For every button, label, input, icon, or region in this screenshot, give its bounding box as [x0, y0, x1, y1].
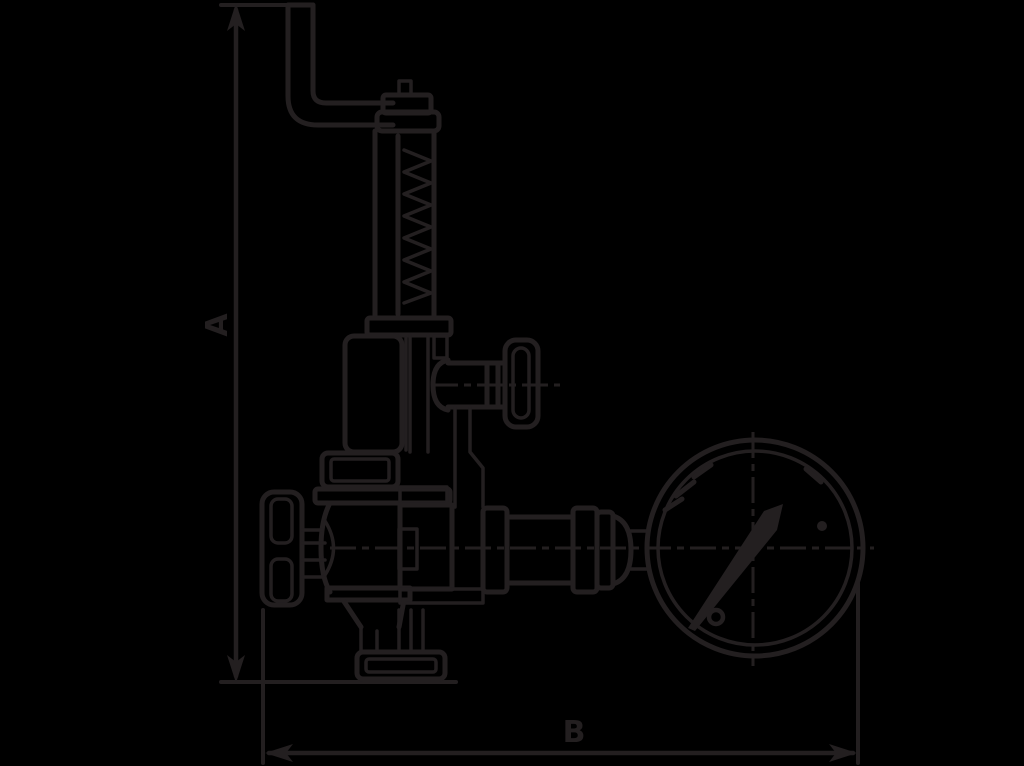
- union-ring-2: [573, 508, 597, 592]
- gauge-dial-ticks: [665, 465, 821, 510]
- gauge-screw-right: [817, 521, 827, 531]
- handwheel-inner-bottom: [271, 559, 292, 601]
- outlet-flange: [357, 652, 445, 679]
- union-body: [507, 517, 573, 583]
- gauge-screw-left: [709, 610, 723, 624]
- handwheel: [262, 492, 325, 605]
- dimension-b-label: B: [563, 715, 586, 750]
- gauge-stem-cap: [613, 516, 631, 584]
- test-knob-inner: [513, 348, 529, 418]
- spring-housing: [367, 131, 451, 358]
- collar-tab: [434, 336, 447, 358]
- body-bottom-band: [327, 588, 410, 600]
- lift-lever: [288, 5, 393, 125]
- lever-outer-edge: [288, 5, 393, 125]
- valve-technical-drawing: A B: [0, 0, 1024, 766]
- spring-coil: [404, 150, 431, 303]
- packing-nut-inner: [331, 459, 389, 481]
- lever-inner-edge: [313, 5, 393, 103]
- gauge-needle: [688, 504, 783, 631]
- union-ring-1: [483, 508, 507, 592]
- drawing-canvas: A B: [0, 0, 1024, 766]
- outlet-neck: [361, 610, 423, 652]
- bonnet-block: [345, 336, 402, 452]
- handwheel-inner-top: [271, 499, 292, 543]
- outlet-funnel: [343, 600, 404, 627]
- branch-down-connector: [455, 407, 483, 507]
- housing-collar: [367, 318, 451, 335]
- bonnet: [345, 335, 428, 452]
- dimension-a-label: A: [200, 313, 235, 337]
- outlet: [343, 600, 445, 679]
- bonnet-edge-lines: [406, 335, 428, 452]
- outlet-flange-inner: [366, 659, 436, 672]
- valve-body: [315, 453, 483, 603]
- handwheel-rim: [262, 492, 302, 605]
- gauge-piping: [483, 508, 648, 592]
- dimension-b: B: [263, 581, 858, 763]
- test-branch: [432, 340, 560, 507]
- union-ring-3: [597, 512, 613, 588]
